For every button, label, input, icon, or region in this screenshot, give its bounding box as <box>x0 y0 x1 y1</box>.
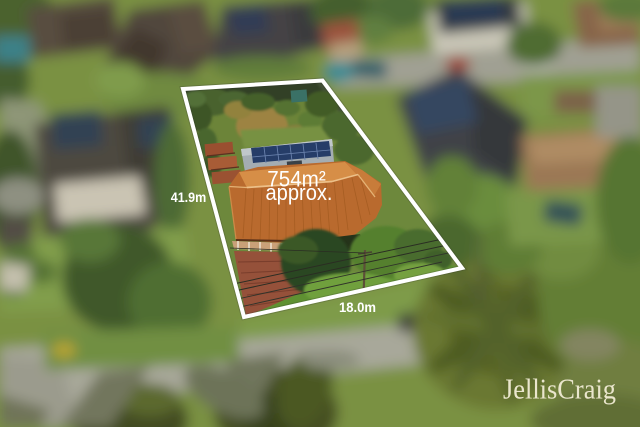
svg-text:41.9m: 41.9m <box>171 190 207 205</box>
svg-text:JellisCraig: JellisCraig <box>503 374 616 406</box>
svg-text:approx.: approx. <box>266 180 333 205</box>
svg-text:18.0m: 18.0m <box>339 299 376 315</box>
